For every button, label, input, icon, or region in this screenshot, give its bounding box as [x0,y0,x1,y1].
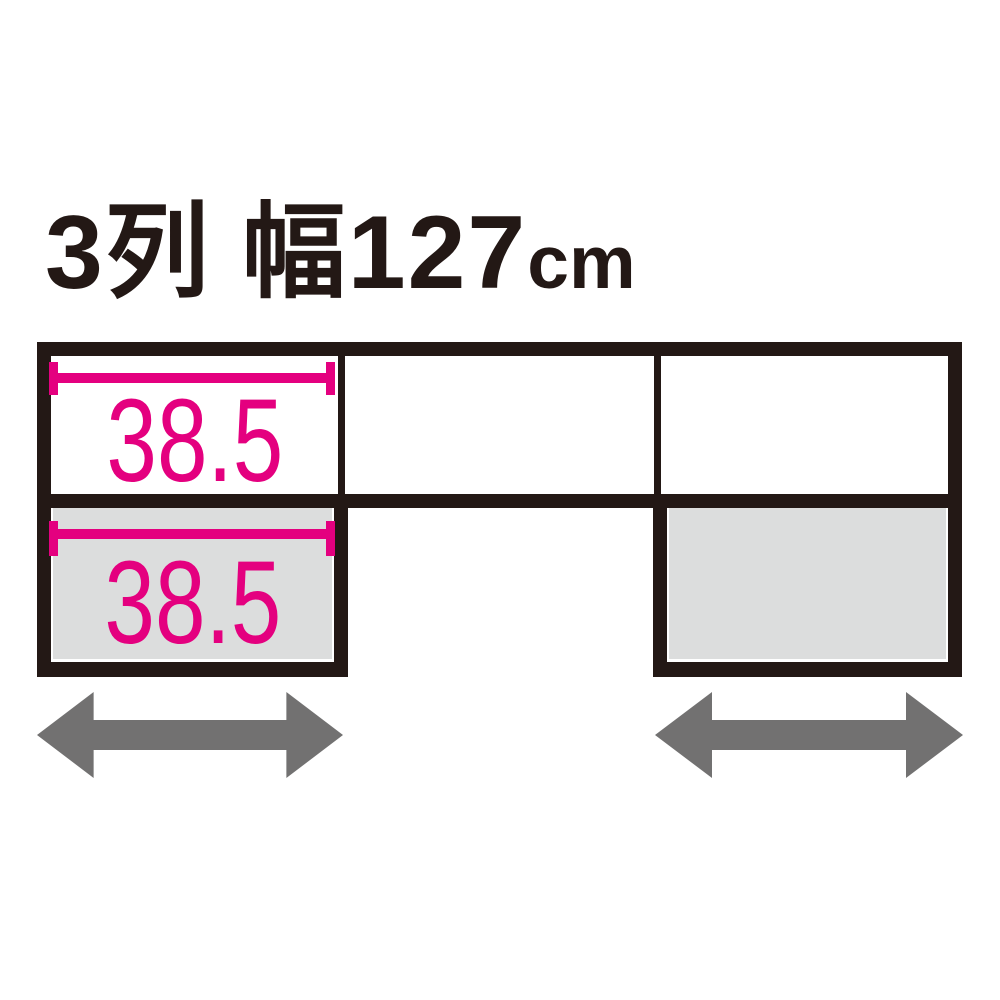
diagram-title: 3列 幅127cm [45,201,636,305]
diagram-title-text: 3列 幅127 [45,195,527,311]
dimension-label-bottom: 38.5 [51,544,335,662]
bottom-right-unit [653,508,962,677]
top-row-divider-1 [338,356,345,494]
top-row-divider-2 [654,356,661,494]
slide-arrow-left-icon [37,692,343,778]
dimension-label-top: 38.5 [51,382,338,500]
diagram-title-unit: cm [527,220,635,304]
slide-arrow-right-icon [655,692,963,778]
furniture-dimension-diagram: 3列 幅127cm 38.5 38.5 [0,0,1000,1000]
bottom-right-unit-fill [669,508,946,659]
